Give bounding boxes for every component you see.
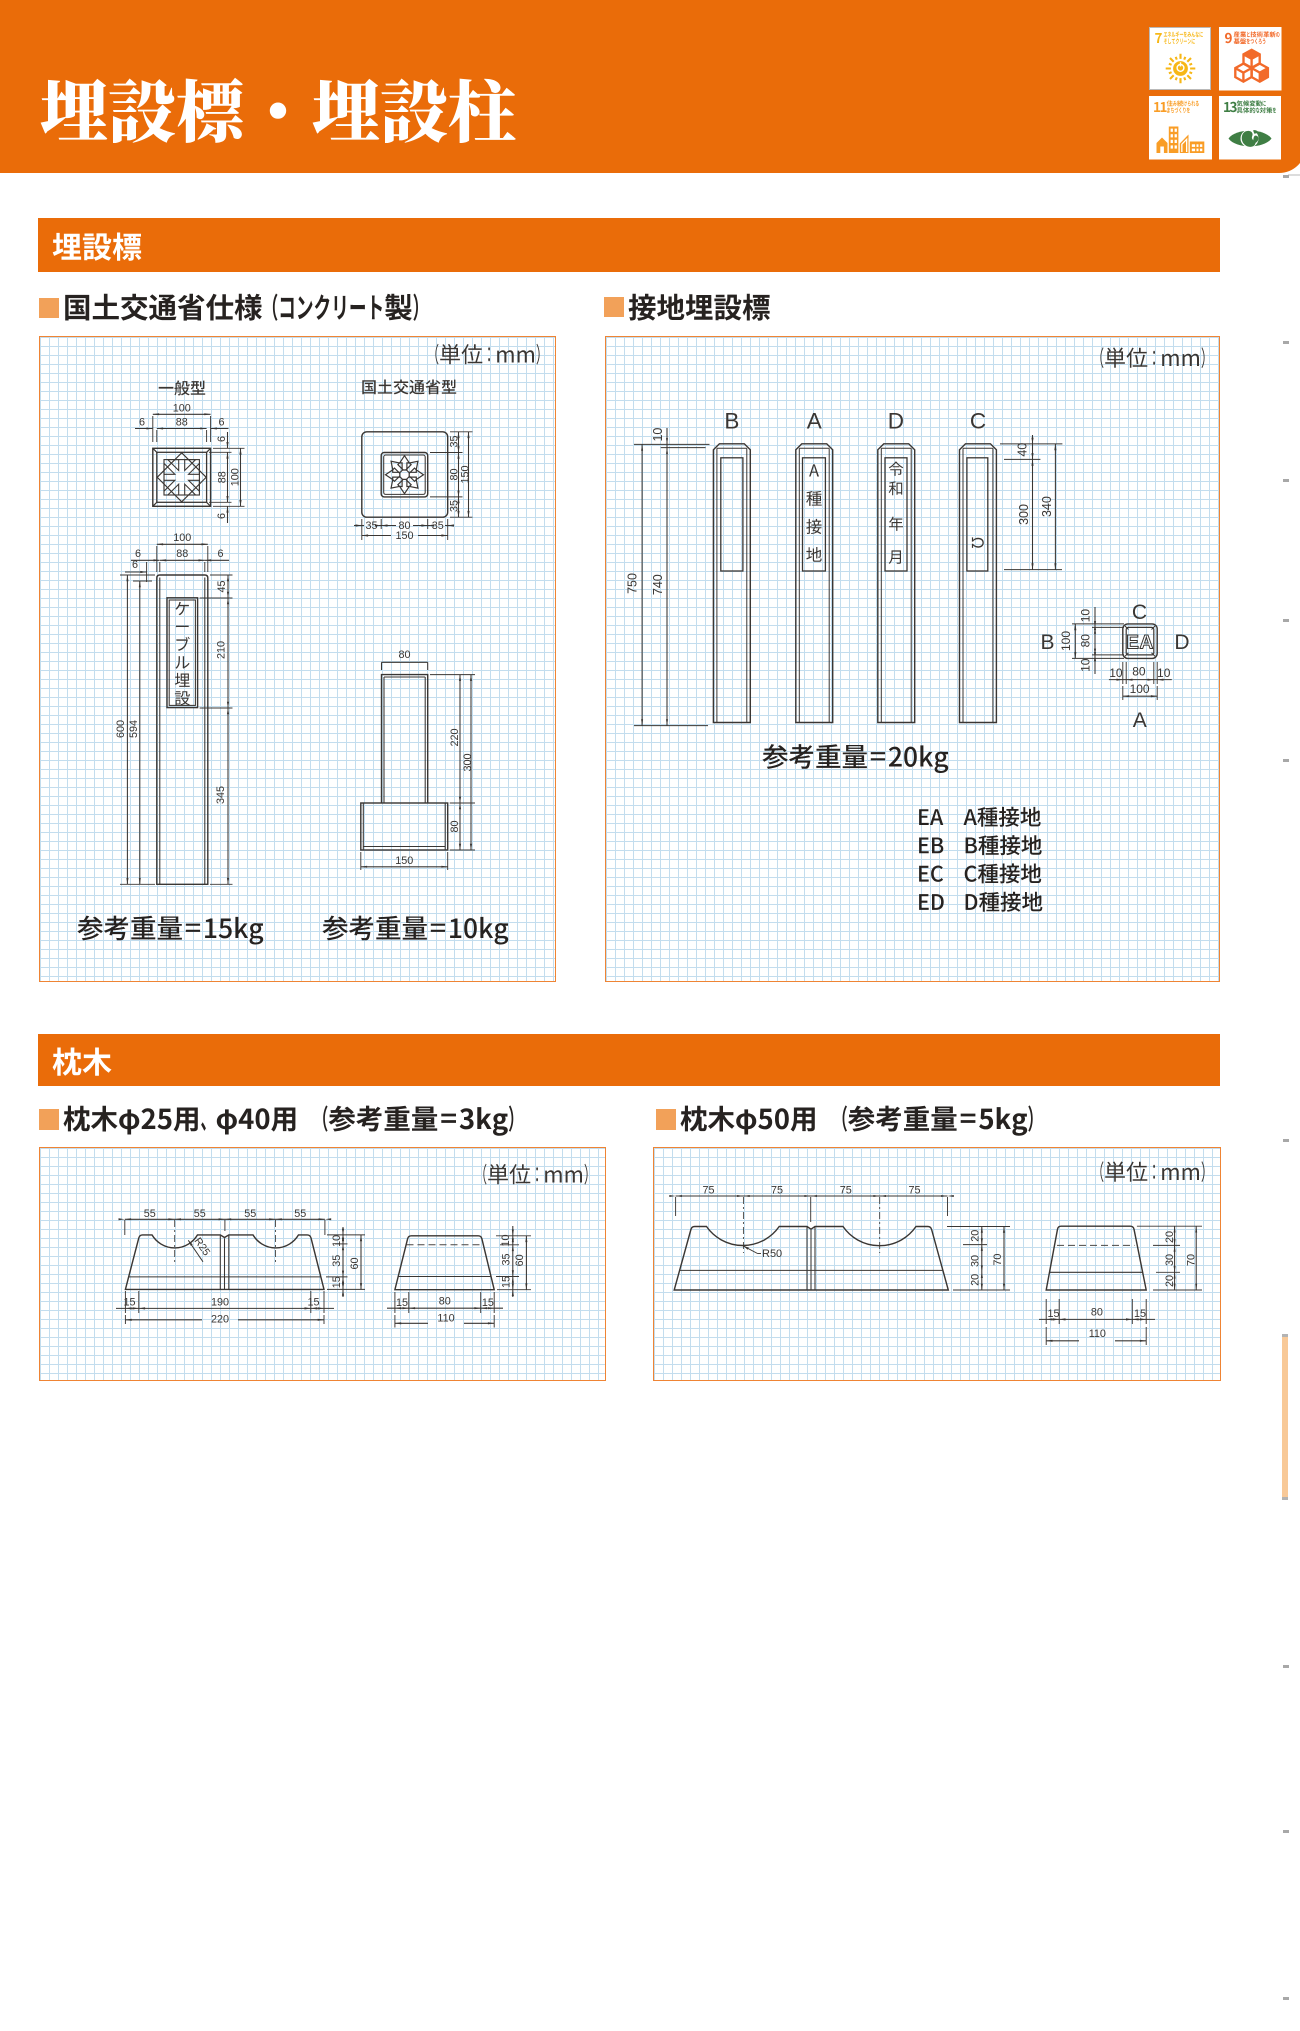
svg-text:88: 88 — [176, 548, 188, 560]
svg-text:35: 35 — [331, 1255, 343, 1267]
svg-text:10: 10 — [331, 1235, 343, 1247]
svg-text:15: 15 — [1134, 1308, 1146, 1320]
svg-text:6: 6 — [216, 436, 228, 442]
svg-text:B: B — [724, 408, 739, 433]
svg-text:20: 20 — [970, 1230, 982, 1242]
svg-text:C: C — [970, 408, 986, 433]
svg-text:210: 210 — [215, 641, 227, 659]
svg-text:15: 15 — [331, 1276, 343, 1288]
svg-text:110: 110 — [437, 1313, 454, 1325]
svg-text:80: 80 — [1132, 665, 1146, 679]
svg-text:15: 15 — [500, 1276, 512, 1288]
svg-text:75: 75 — [702, 1185, 714, 1197]
svg-text:10: 10 — [1078, 609, 1092, 623]
svg-text:340: 340 — [1040, 496, 1054, 517]
svg-text:80: 80 — [398, 649, 410, 661]
svg-text:55: 55 — [144, 1208, 156, 1220]
svg-text:150: 150 — [395, 530, 413, 542]
svg-text:30: 30 — [1164, 1254, 1176, 1266]
svg-text:15: 15 — [396, 1297, 408, 1309]
svg-text:C: C — [1132, 601, 1147, 624]
svg-text:80: 80 — [1078, 634, 1092, 648]
svg-text:100: 100 — [229, 468, 241, 486]
svg-text:R50: R50 — [762, 1248, 782, 1260]
svg-text:70: 70 — [1185, 1254, 1197, 1266]
svg-text:55: 55 — [294, 1208, 306, 1220]
svg-text:D: D — [1174, 631, 1189, 654]
svg-text:220: 220 — [449, 728, 461, 746]
svg-text:55: 55 — [194, 1208, 206, 1220]
svg-text:6: 6 — [216, 513, 228, 519]
svg-text:10: 10 — [1109, 666, 1123, 680]
svg-text:75: 75 — [908, 1185, 920, 1197]
svg-text:10: 10 — [1157, 666, 1171, 680]
svg-text:100: 100 — [173, 532, 191, 544]
svg-text:75: 75 — [840, 1185, 852, 1197]
svg-text:150: 150 — [459, 465, 471, 483]
svg-text:45: 45 — [216, 580, 228, 592]
svg-text:6: 6 — [132, 559, 138, 571]
svg-text:15: 15 — [307, 1297, 319, 1309]
svg-text:110: 110 — [1089, 1328, 1106, 1340]
svg-text:88: 88 — [176, 417, 188, 429]
svg-text:10: 10 — [651, 428, 665, 442]
svg-text:6: 6 — [218, 417, 224, 429]
svg-text:220: 220 — [211, 1314, 229, 1326]
svg-text:80: 80 — [449, 820, 461, 832]
svg-text:300: 300 — [462, 753, 474, 771]
svg-text:594: 594 — [128, 720, 140, 738]
svg-text:70: 70 — [992, 1254, 1004, 1266]
svg-text:20: 20 — [970, 1274, 982, 1286]
svg-text:6: 6 — [217, 548, 223, 560]
svg-text:EA: EA — [1126, 633, 1153, 654]
svg-text:190: 190 — [211, 1297, 229, 1309]
svg-text:A: A — [807, 408, 822, 433]
svg-text:88: 88 — [216, 471, 228, 483]
svg-text:740: 740 — [651, 574, 665, 595]
svg-text:600: 600 — [115, 720, 127, 738]
svg-text:300: 300 — [1017, 504, 1031, 525]
svg-text:750: 750 — [626, 573, 640, 594]
svg-text:100: 100 — [1130, 682, 1150, 696]
svg-text:60: 60 — [514, 1254, 526, 1266]
svg-text:60: 60 — [349, 1257, 361, 1269]
svg-text:40: 40 — [1015, 443, 1029, 457]
svg-text:A: A — [1133, 709, 1147, 732]
svg-text:150: 150 — [395, 855, 413, 867]
svg-text:75: 75 — [771, 1185, 783, 1197]
svg-text:345: 345 — [215, 786, 227, 804]
svg-text:15: 15 — [1047, 1308, 1059, 1320]
svg-text:10: 10 — [1078, 658, 1092, 672]
svg-text:80: 80 — [1091, 1307, 1103, 1319]
svg-text:B: B — [1040, 631, 1054, 654]
svg-text:6: 6 — [139, 417, 145, 429]
svg-text:80: 80 — [439, 1296, 451, 1308]
svg-text:55: 55 — [244, 1208, 256, 1220]
svg-text:D: D — [888, 408, 904, 433]
svg-text:100: 100 — [173, 403, 191, 415]
svg-text:35: 35 — [500, 1253, 512, 1265]
svg-text:100: 100 — [1059, 631, 1073, 651]
svg-text:30: 30 — [970, 1255, 982, 1267]
